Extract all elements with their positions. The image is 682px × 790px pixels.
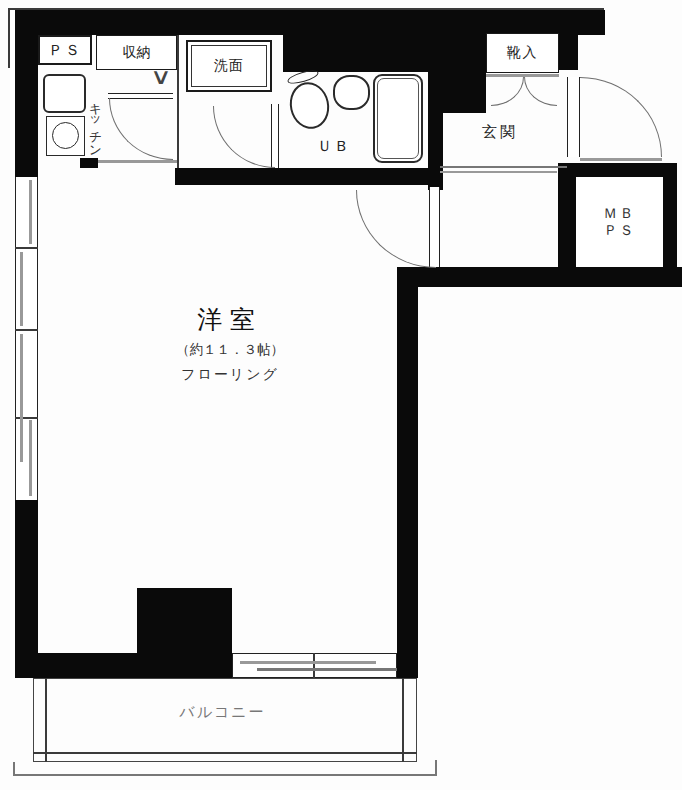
toilet-icon <box>286 78 334 132</box>
window-sash-line <box>29 420 32 496</box>
balcony-outer-tick-right <box>435 760 437 776</box>
meter-box-inner: ＭＢ ＰＳ <box>576 177 663 267</box>
entrance-threshold <box>580 158 662 161</box>
washbasin-counter: 洗面 <box>186 40 272 92</box>
wall-mid-horizontal <box>175 168 443 185</box>
sliding-door-sash2 <box>257 668 397 671</box>
balcony-outer-line <box>13 774 437 776</box>
entrance-step-line <box>440 166 567 168</box>
unit-bath-label: ＵＢ <box>310 136 358 156</box>
kitchen-sink-icon <box>43 74 86 113</box>
sliding-door-sash1 <box>240 661 376 664</box>
shoe-box-door-arc-right <box>524 77 557 106</box>
sliding-door-divider <box>313 653 315 678</box>
stove-burner-icon <box>52 122 79 149</box>
shoe-box: 靴入 <box>486 33 559 73</box>
balcony-inner-right-line <box>402 678 404 762</box>
main-room-floor-label: フローリング <box>130 366 330 384</box>
wall-room-right <box>397 267 418 678</box>
room-door-arc <box>356 190 436 268</box>
left-window-divider <box>15 417 38 419</box>
floor-plan: ＰＳ 収納 ∨ キッチン 洗面 ＵＢ 靴入 玄関 ＭＢ ＰＳ 洋室 （ <box>0 0 682 790</box>
meter-box-label-ps: ＰＳ <box>604 222 636 240</box>
washroom-left-wall-line <box>177 35 179 168</box>
entrance-label: 玄関 <box>465 122 535 142</box>
kitchen-threshold <box>98 160 177 163</box>
entrance-door-arc <box>580 77 662 157</box>
washroom-door-arc <box>213 106 275 168</box>
storage-label: 収納 <box>123 44 151 62</box>
left-window-divider <box>15 247 38 249</box>
left-window-frame <box>15 177 38 500</box>
window-sash-line <box>20 252 23 326</box>
meter-box-label-mb: ＭＢ <box>604 205 636 223</box>
left-window-divider <box>15 329 38 331</box>
balcony-inner-bottom-line <box>33 752 417 754</box>
main-room-size-label: （約１１．３帖） <box>130 341 330 359</box>
wall-top-right-stem <box>559 12 578 70</box>
window-sash-line <box>29 180 32 244</box>
entrance-step-line2 <box>440 171 557 173</box>
wall-left-upper <box>15 10 38 177</box>
wall-entry-left-block <box>441 33 486 113</box>
balcony-outer-tick-left <box>13 762 15 776</box>
kitchen-label: キッチン <box>86 85 104 161</box>
pipe-space-box: ＰＳ <box>38 35 92 65</box>
wall-top-band <box>15 10 605 35</box>
entrance-door-panel <box>567 77 580 157</box>
kitchen-door-arc <box>109 98 173 160</box>
wall-left-lower <box>15 500 38 678</box>
pipe-space-label: ＰＳ <box>48 41 82 60</box>
bathtub-icon <box>373 74 423 163</box>
balcony-label: バルコニー <box>140 702 305 722</box>
shoe-box-door-arc-left <box>491 77 524 106</box>
shoe-box-label: 靴入 <box>507 44 539 62</box>
wall-ub-top <box>283 33 443 72</box>
wall-pillar <box>137 588 232 678</box>
balcony-inner-left-line <box>45 678 47 762</box>
wall-entry-bottom <box>413 267 682 287</box>
bath-sink-icon <box>333 75 370 110</box>
main-room-label: 洋室 <box>140 302 320 336</box>
outer-left-tick <box>8 8 10 68</box>
window-sash-line <box>20 334 23 462</box>
